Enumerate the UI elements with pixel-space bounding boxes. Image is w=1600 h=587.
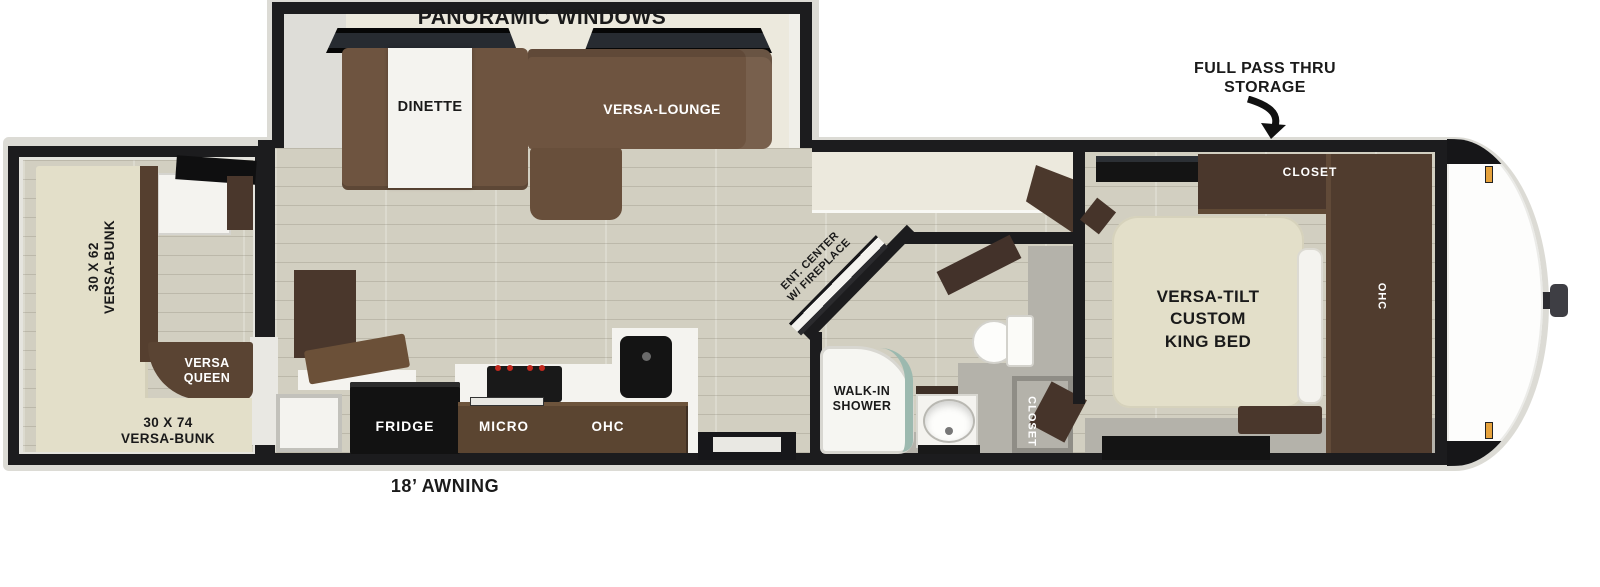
marker-light-bottom xyxy=(1485,422,1493,439)
micro-tray xyxy=(470,397,544,406)
bunk-74-size: 30 X 74 xyxy=(88,415,248,431)
entry-door-step xyxy=(713,437,781,452)
stove-knob xyxy=(507,365,513,371)
versa-lounge-label: VERSA-LOUNGE xyxy=(582,101,742,118)
pass-thru-line2: STORAGE xyxy=(1155,79,1375,98)
kitchen-sink xyxy=(620,336,672,398)
micro-label: MICRO xyxy=(460,419,548,435)
dinette-label: DINETTE xyxy=(370,99,490,116)
bunkroom-rear-wall xyxy=(8,146,19,465)
bedroom-closet-label: CLOSET xyxy=(1265,165,1355,179)
stove-knob xyxy=(527,365,533,371)
sink-faucet xyxy=(945,427,953,435)
versa-queen-line2: QUEEN xyxy=(163,371,251,386)
front-nose xyxy=(1447,139,1543,466)
bed-foot-bench xyxy=(1238,406,1322,434)
versa-queen-label: VERSA QUEEN xyxy=(163,356,251,386)
bunk-62-name: VERSA-BUNK xyxy=(102,207,118,327)
toilet-tank xyxy=(1006,315,1034,367)
bed-line1: VERSA-TILT xyxy=(1112,286,1304,308)
versa-lounge-sofa xyxy=(528,49,772,149)
bedroom-window-bottom xyxy=(1102,436,1270,460)
sink-drain xyxy=(642,352,651,361)
bunk-62-label: 30 X 62 VERSA-BUNK xyxy=(86,207,118,327)
bunkroom-doorway xyxy=(250,337,278,445)
bunk-74-label: 30 X 74 VERSA-BUNK xyxy=(88,415,248,447)
bedroom-ohc-label: OHC xyxy=(1375,256,1388,336)
bath-closet-label: CLOSET xyxy=(1025,386,1038,456)
walk-in-shower-label: WALK-IN SHOWER xyxy=(818,384,906,414)
nose-top-cap xyxy=(1447,139,1543,164)
bedroom-left-wall xyxy=(1073,152,1085,404)
stove-knob xyxy=(495,365,501,371)
stove-knob xyxy=(539,365,545,371)
shower-line1: WALK-IN xyxy=(818,384,906,399)
entry-door xyxy=(698,432,796,460)
versa-lounge-chaise xyxy=(530,148,622,220)
versa-queen-line1: VERSA xyxy=(163,356,251,371)
nose-bottom-cap xyxy=(1447,441,1543,466)
hitch-jack xyxy=(1550,284,1568,317)
storage-arrow-icon xyxy=(1242,96,1290,140)
bunkroom-corner-cabinet xyxy=(227,176,253,230)
entry-landing xyxy=(276,394,342,452)
bunkroom-bottom-wall xyxy=(8,454,268,465)
pass-thru-line1: FULL PASS THRU xyxy=(1155,60,1375,79)
fridge-label: FRIDGE xyxy=(345,418,465,435)
shower-line2: SHOWER xyxy=(818,399,906,414)
vanity-sink xyxy=(923,399,975,443)
panoramic-windows-label: PANORAMIC WINDOWS xyxy=(277,6,807,31)
dinette-table xyxy=(388,48,472,188)
bed-line3: KING BED xyxy=(1112,331,1304,353)
bed-line2: CUSTOM xyxy=(1112,308,1304,330)
bunk-74-name: VERSA-BUNK xyxy=(88,431,248,447)
awning-label: 18’ AWNING xyxy=(330,476,560,497)
main-right-wall xyxy=(1435,140,1447,465)
bunk-divider xyxy=(140,166,158,362)
kitchen-ohc-label: OHC xyxy=(558,419,658,435)
bunkroom-top-wall xyxy=(8,146,268,157)
marker-light-top xyxy=(1485,166,1493,183)
bunk-62-size: 30 X 62 xyxy=(86,207,102,327)
bathroom-top-wall xyxy=(905,232,1075,244)
bath-mat xyxy=(918,445,980,454)
pass-thru-storage-label: FULL PASS THRU STORAGE xyxy=(1155,60,1375,98)
main-top-wall xyxy=(812,140,1447,152)
rv-floorplan: 30 X 62 VERSA-BUNK VERSA QUEEN 30 X 74 V… xyxy=(0,0,1600,587)
king-bed-label: VERSA-TILT CUSTOM KING BED xyxy=(1112,286,1304,353)
